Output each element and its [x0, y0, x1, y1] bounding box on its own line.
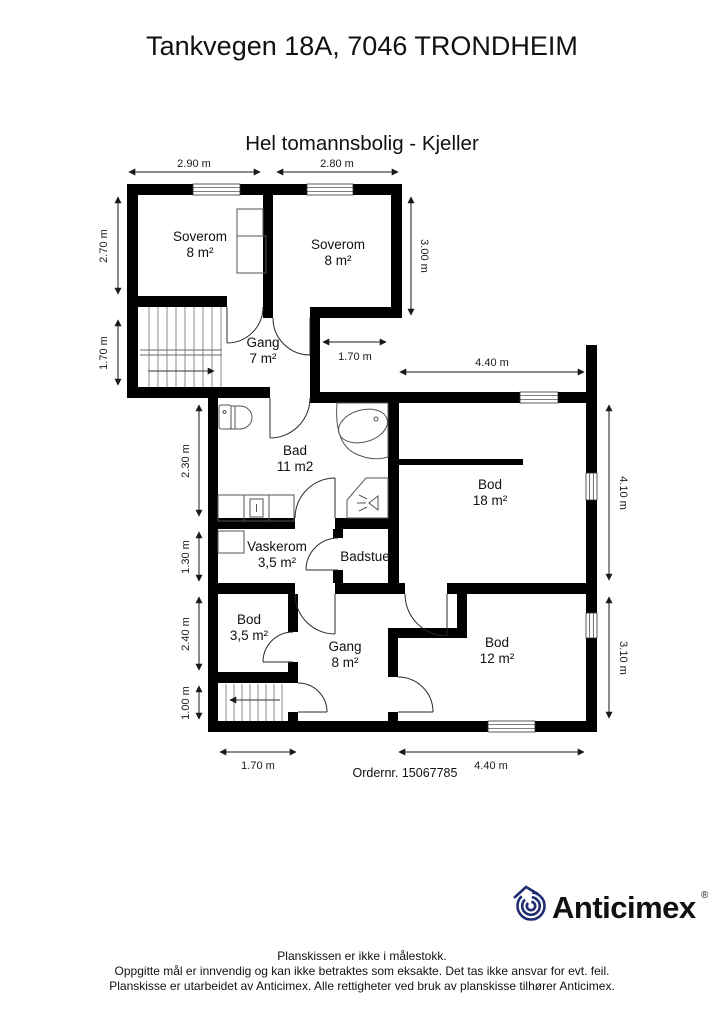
- bathtub-icon: [335, 403, 392, 459]
- svg-text:4.10 m: 4.10 m: [617, 476, 629, 510]
- dimension-bod18-width: 4.40 m: [400, 357, 584, 372]
- dimension-bottom-left-width: 1.70 m: [220, 752, 296, 772]
- floorplan-page: Tankvegen 18A, 7046 TRONDHEIM Hel tomann…: [0, 0, 724, 1024]
- svg-text:Badstue: Badstue: [340, 549, 390, 564]
- svg-text:Soverom: Soverom: [173, 229, 227, 244]
- room-label-gang8: Gang 8 m²: [328, 639, 361, 670]
- svg-text:Vaskerom: Vaskerom: [247, 539, 307, 554]
- svg-text:12 m²: 12 m²: [480, 651, 515, 666]
- room-label-gang7: Gang 7 m²: [246, 335, 279, 366]
- room-label-vaskerom: Vaskerom 3,5 m²: [247, 539, 307, 570]
- dimension-soverom2-width: 2.80 m: [277, 158, 398, 172]
- room-label-soverom-right: Soverom 8 m²: [311, 237, 365, 268]
- room-label-bod12: Bod 12 m²: [480, 635, 515, 666]
- registered-trademark-icon: ®: [701, 890, 709, 901]
- window-bod18-top: [520, 392, 558, 403]
- svg-text:Gang: Gang: [328, 639, 361, 654]
- svg-text:3.00 m: 3.00 m: [418, 239, 430, 273]
- dimension-soverom1-height: 2.70 m: [98, 197, 118, 294]
- dimension-notch-width: 1.70 m: [323, 342, 386, 363]
- door-stairs-gang8: [298, 683, 327, 712]
- svg-text:2.90 m: 2.90 m: [177, 158, 211, 170]
- svg-text:18 m²: 18 m²: [473, 493, 508, 508]
- svg-text:2.40 m: 2.40 m: [180, 617, 192, 651]
- dimension-soverom1-width: 2.90 m: [129, 158, 260, 172]
- door-badstue: [306, 538, 338, 570]
- page-title: Tankvegen 18A, 7046 TRONDHEIM: [146, 31, 578, 61]
- dimension-soverom2-height: 3.00 m: [411, 197, 430, 315]
- anticimex-logo-icon: [512, 884, 545, 920]
- room-label-soverom-left: Soverom 8 m²: [173, 229, 227, 260]
- wardrobe-icon: [237, 209, 266, 273]
- svg-text:2.70 m: 2.70 m: [98, 229, 110, 263]
- svg-text:3.10 m: 3.10 m: [617, 641, 629, 675]
- washing-machine-icon: [218, 495, 294, 521]
- dimension-bad-height: 2.30 m: [180, 405, 199, 516]
- svg-text:8 m²: 8 m²: [187, 245, 215, 260]
- svg-text:2.80 m: 2.80 m: [320, 158, 354, 170]
- svg-text:Bod: Bod: [485, 635, 509, 650]
- floorplan-svg: Tankvegen 18A, 7046 TRONDHEIM Hel tomann…: [0, 0, 724, 1024]
- anticimex-logo: Anticimex ®: [512, 884, 709, 925]
- footer-disclaimer: Planskissen er ikke i målestokk. Oppgitt…: [109, 949, 615, 993]
- sink-cabinet-icon: [218, 531, 244, 553]
- dimension-bod35-height: 2.40 m: [180, 597, 199, 670]
- door-vaskerom-gang8: [295, 594, 335, 634]
- walls: [127, 184, 597, 732]
- svg-text:4.40 m: 4.40 m: [475, 357, 509, 369]
- window-bod18-right: [586, 473, 597, 500]
- dimension-stairs-height: 1.70 m: [98, 320, 118, 385]
- svg-text:Bod: Bod: [237, 612, 261, 627]
- svg-text:3,5 m²: 3,5 m²: [230, 628, 269, 643]
- door-bod12: [398, 677, 433, 712]
- shower-icon: [347, 478, 388, 518]
- staircase-lower: [226, 684, 282, 721]
- svg-text:2.30 m: 2.30 m: [180, 444, 192, 478]
- dimension-vaskerom-height: 1.30 m: [180, 532, 199, 581]
- order-number: Ordernr. 15067785: [353, 766, 458, 780]
- svg-text:7 m²: 7 m²: [250, 351, 278, 366]
- room-label-bod18: Bod 18 m²: [473, 477, 508, 508]
- room-label-bod35: Bod 3,5 m²: [230, 612, 269, 643]
- svg-text:1.30 m: 1.30 m: [180, 540, 192, 574]
- plan-subtitle: Hel tomannsbolig - Kjeller: [245, 132, 479, 155]
- svg-text:Bad: Bad: [283, 443, 307, 458]
- door-gang-bad: [270, 398, 310, 438]
- dimension-stairs2-height: 1.00 m: [180, 686, 199, 720]
- svg-text:11 m2: 11 m2: [277, 459, 314, 474]
- room-label-badstue: Badstue: [340, 549, 390, 564]
- svg-text:8 m²: 8 m²: [325, 253, 353, 268]
- svg-text:1.70 m: 1.70 m: [98, 336, 110, 370]
- svg-text:8 m²: 8 m²: [332, 655, 360, 670]
- svg-text:Soverom: Soverom: [311, 237, 365, 252]
- dimension-bod12-height: 3.10 m: [609, 597, 629, 718]
- staircase-upper: [140, 307, 222, 387]
- svg-text:3,5 m²: 3,5 m²: [258, 555, 297, 570]
- toilet-icon: [219, 405, 252, 429]
- svg-text:1.70 m: 1.70 m: [241, 760, 275, 772]
- footer-line-2: Oppgitte mål er innvendig og kan ikke be…: [115, 964, 610, 978]
- window-bod12-right: [586, 613, 597, 638]
- anticimex-logo-text: Anticimex: [552, 890, 697, 925]
- svg-text:Gang: Gang: [246, 335, 279, 350]
- door-bad-vaskerom: [295, 478, 335, 518]
- svg-text:1.00 m: 1.00 m: [180, 686, 192, 720]
- svg-text:1.70 m: 1.70 m: [338, 351, 372, 363]
- window-bod12-bottom: [488, 721, 535, 732]
- room-label-bad: Bad 11 m2: [277, 443, 314, 474]
- dimension-bod18-height: 4.10 m: [609, 405, 629, 580]
- svg-text:Bod: Bod: [478, 477, 502, 492]
- footer-line-1: Planskissen er ikke i målestokk.: [277, 949, 446, 963]
- footer-line-3: Planskisse er utarbeidet av Anticimex. A…: [109, 979, 615, 993]
- window-soverom-left: [193, 184, 240, 195]
- window-soverom-right: [307, 184, 353, 195]
- svg-text:4.40 m: 4.40 m: [474, 760, 508, 772]
